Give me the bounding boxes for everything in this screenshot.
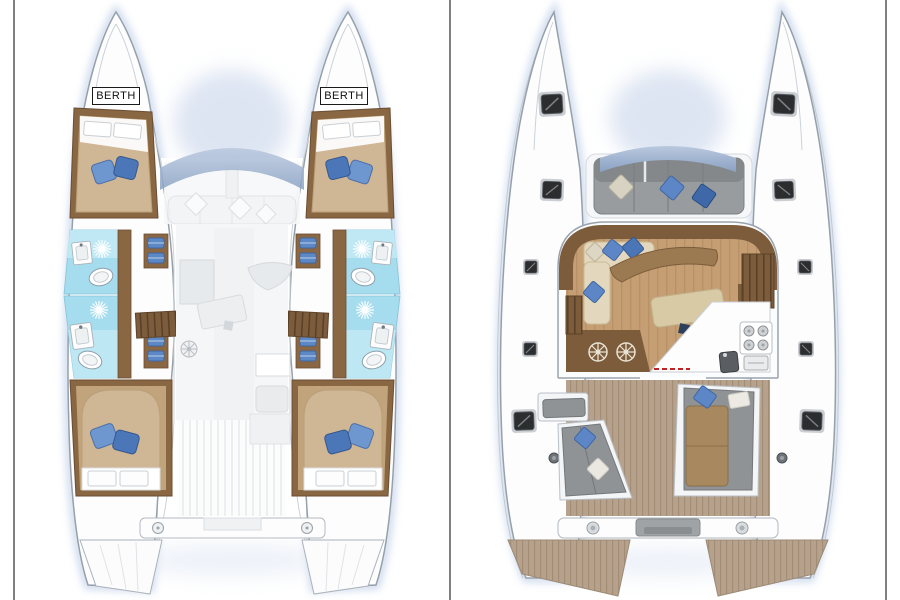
ghost-cockpit-table bbox=[250, 414, 290, 444]
transom-crossbeam bbox=[140, 518, 325, 538]
galley-stove bbox=[740, 322, 772, 354]
panel-divider-center bbox=[449, 0, 451, 600]
galley-sink bbox=[719, 351, 739, 373]
ghost-stove-wheel bbox=[181, 341, 197, 357]
companionway-steps bbox=[566, 296, 582, 334]
berth-label-port: BERTH bbox=[92, 87, 140, 105]
companionway-steps bbox=[742, 254, 774, 308]
panel-divider-left bbox=[13, 0, 15, 600]
transom-crossbeam bbox=[558, 518, 778, 538]
panel-divider-right bbox=[885, 0, 887, 600]
catamaran-floorplan-image: BERTH BERTH bbox=[0, 0, 900, 600]
transom-platform-starboard bbox=[706, 540, 828, 596]
transom-platform-port bbox=[508, 540, 630, 596]
pillow-icon bbox=[728, 391, 750, 408]
ghost-saloon bbox=[176, 224, 292, 420]
saloon bbox=[558, 222, 778, 378]
galley-counter-port bbox=[566, 330, 650, 372]
berth-label-starboard: BERTH bbox=[320, 87, 368, 105]
starboard-cockpit-bench bbox=[674, 384, 760, 496]
